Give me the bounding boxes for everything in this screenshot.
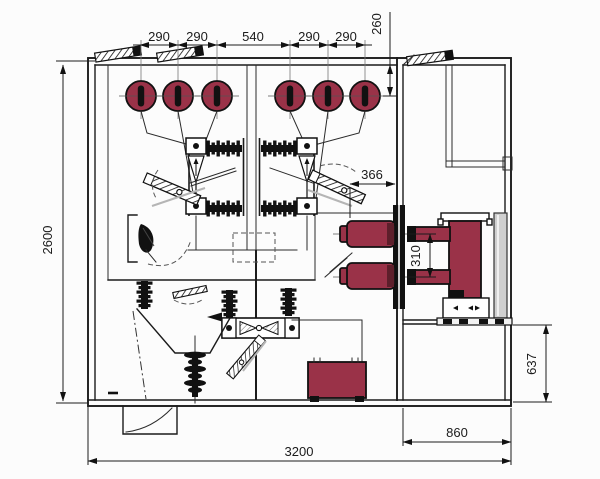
dim-label-310: 310 xyxy=(408,245,423,267)
fixed-bushing xyxy=(340,263,395,289)
dim-label-637: 637 xyxy=(524,353,539,375)
dim-label-540: 540 xyxy=(242,29,264,44)
cable-funnel xyxy=(133,281,230,399)
phantom-outline xyxy=(233,233,275,262)
dim-2600: 2600 xyxy=(40,61,95,403)
dim-label-290-4: 290 xyxy=(335,29,357,44)
vent-flap-icon xyxy=(407,50,454,65)
vent-flaps xyxy=(95,46,454,66)
dim-label-260: 260 xyxy=(369,13,384,35)
vent-flap-icon xyxy=(157,46,204,62)
bushing-circle xyxy=(306,40,350,119)
shelf-lever xyxy=(173,286,208,304)
diagram-canvas: 290 290 540 290 290 260 2600 366 310 637 xyxy=(0,0,600,479)
breaker-body xyxy=(449,221,481,298)
door-mechanism xyxy=(128,215,191,266)
fixed-bushing xyxy=(340,221,395,247)
ct-box xyxy=(292,320,366,402)
surge-arrester xyxy=(184,336,206,403)
dim-label-860: 860 xyxy=(446,425,468,440)
operating-lever xyxy=(227,335,266,379)
disconnector-cell-left xyxy=(143,138,243,217)
interlock-arrow-icon xyxy=(207,313,222,322)
dim-label-366: 366 xyxy=(361,167,383,182)
bushing-circle xyxy=(343,40,387,119)
dim-label-290-2: 290 xyxy=(186,29,208,44)
cable-trench xyxy=(123,406,177,434)
switchgear-cross-section: 290 290 540 290 290 260 2600 366 310 637 xyxy=(0,0,600,479)
dim-860: 860 xyxy=(403,408,511,465)
dim-label-290-3: 290 xyxy=(298,29,320,44)
vent-flap-icon xyxy=(95,46,142,62)
dim-637: 637 xyxy=(513,325,552,402)
dim-top-chain: 290 290 540 290 290 xyxy=(133,29,372,45)
dim-label-3200: 3200 xyxy=(285,444,314,459)
truck-front-panel xyxy=(494,213,507,318)
dim-label-2600: 2600 xyxy=(40,226,55,255)
breaker-truck xyxy=(443,298,489,318)
bushing-circle xyxy=(268,40,312,119)
cable-bushings xyxy=(119,40,387,119)
dim-label-290-1: 290 xyxy=(148,29,170,44)
